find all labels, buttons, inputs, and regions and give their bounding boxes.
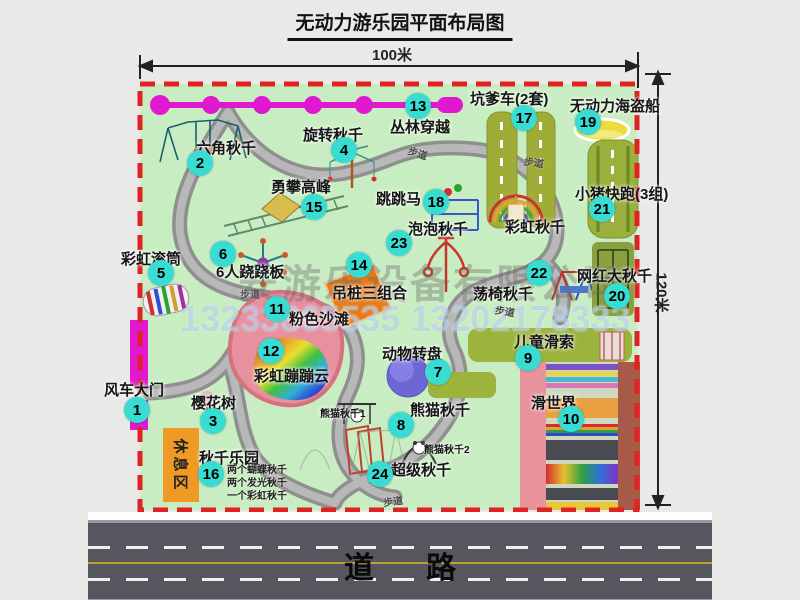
path-label-4: 步道: [494, 301, 516, 319]
badge-20: 20: [604, 283, 630, 309]
badge-2: 2: [187, 150, 213, 176]
badge-4: 4: [331, 137, 357, 163]
label-panda-swing-1: 熊猫秋千1: [320, 405, 366, 420]
badge-23: 23: [386, 230, 412, 256]
label-rocking-chair-swing: 荡椅秋千: [473, 283, 533, 304]
label-jungle-crossing: 丛林穿越: [390, 116, 450, 137]
badge-15: 15: [301, 194, 327, 220]
badge-18: 18: [423, 189, 449, 215]
label-panda-swing: 熊猫秋千: [410, 399, 470, 420]
path-label-3: 步道: [240, 286, 260, 301]
label-rainbow-swing: 彩虹秋千: [505, 216, 565, 237]
badge-19: 19: [575, 109, 601, 135]
road-zone: 道路: [88, 512, 712, 600]
badge-12: 12: [258, 338, 284, 364]
badge-7: 7: [425, 359, 451, 385]
badge-1: 1: [124, 397, 150, 423]
label-climbing-peak: 勇攀高峰: [271, 176, 331, 197]
badge-3: 3: [200, 408, 226, 434]
badge-22: 22: [526, 260, 552, 286]
badge-6: 6: [210, 241, 236, 267]
label-pink-beach: 粉色沙滩: [289, 308, 349, 329]
badge-9: 9: [515, 345, 541, 371]
badge-17: 17: [511, 105, 537, 131]
rest-area-box: 休息区: [163, 428, 199, 502]
label-jump-horse: 跳跳马: [376, 188, 421, 209]
rest-area-label: 休息区: [171, 438, 192, 492]
label-rainbow-bounce-cloud: 彩虹蹦蹦云: [254, 365, 329, 386]
label-hanging-pile-combo: 吊桩三组合: [332, 282, 407, 303]
badge-21: 21: [589, 196, 615, 222]
label-panda-swing-2: 熊猫秋千2: [424, 441, 470, 456]
badge-11: 11: [264, 296, 290, 322]
label-super-swing: 超级秋千: [391, 459, 451, 480]
road-label: 道路: [88, 543, 712, 587]
badge-14: 14: [346, 252, 372, 278]
badge-13: 13: [405, 93, 431, 119]
slide-world-icon: [520, 362, 640, 510]
park-layout-screenshot: 安游乐设备有限公司 13233865535 13202178333 无动力游乐园…: [0, 0, 800, 600]
road: 道路: [88, 520, 712, 600]
label-piggy-run: 小猪快跑(3组): [575, 183, 668, 204]
label-bubble-swing: 泡泡秋千: [408, 218, 468, 239]
badge-16: 16: [198, 461, 224, 487]
badge-8: 8: [388, 412, 414, 438]
swing-park-note-3: 一个彩虹秋千: [227, 487, 287, 502]
label-pit-cart: 坑爹车(2套): [470, 88, 548, 109]
badge-24: 24: [367, 461, 393, 487]
badge-5: 5: [148, 260, 174, 286]
path-label-2: 步道: [523, 153, 545, 171]
badge-10: 10: [558, 406, 584, 432]
path-label-5: 步道: [382, 492, 404, 510]
